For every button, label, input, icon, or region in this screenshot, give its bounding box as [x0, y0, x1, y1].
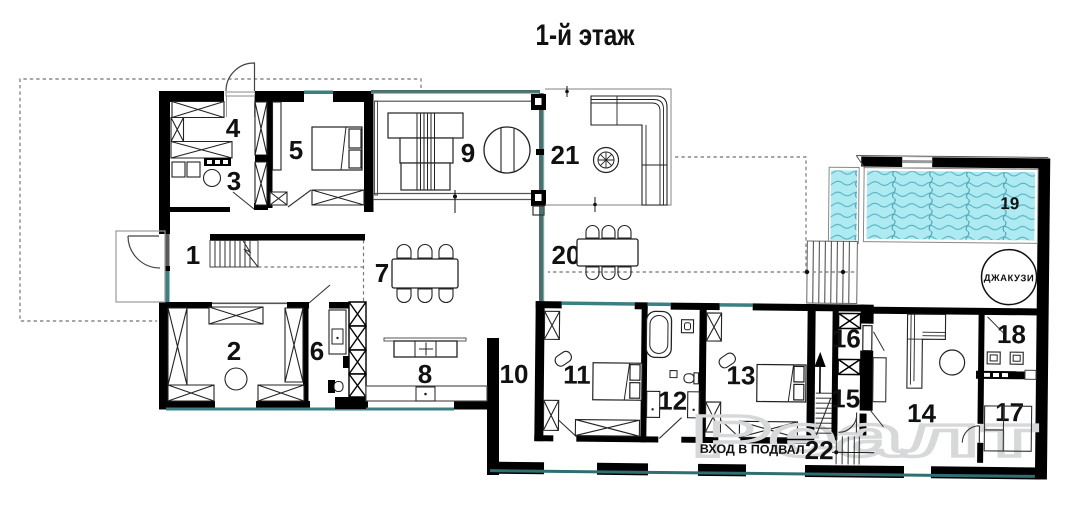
svg-text:5: 5: [289, 135, 303, 165]
svg-text:22: 22: [805, 435, 834, 465]
svg-text:ДЖАКУЗИ: ДЖАКУЗИ: [984, 273, 1035, 285]
svg-text:20: 20: [552, 240, 581, 270]
svg-text:1: 1: [186, 240, 200, 270]
svg-text:11: 11: [563, 359, 591, 389]
svg-text:8: 8: [418, 359, 432, 389]
svg-text:9: 9: [461, 138, 475, 168]
svg-text:10: 10: [500, 359, 529, 389]
svg-text:3: 3: [227, 166, 241, 196]
svg-text:21: 21: [551, 140, 580, 170]
svg-text:18: 18: [997, 319, 1026, 349]
svg-text:7: 7: [375, 258, 389, 288]
svg-text:15: 15: [831, 383, 860, 413]
svg-text:Реалт: Реалт: [691, 404, 1039, 469]
svg-text:19: 19: [1000, 194, 1019, 213]
svg-text:17: 17: [995, 397, 1024, 427]
svg-text:14: 14: [907, 398, 937, 428]
svg-text:2: 2: [227, 336, 241, 366]
svg-text:4: 4: [226, 113, 241, 143]
svg-text:1-й этаж: 1-й этаж: [536, 19, 636, 52]
svg-text:ВХОД В ПОДВАЛ: ВХОД В ПОДВАЛ: [700, 442, 805, 457]
svg-text:12: 12: [658, 385, 687, 415]
svg-text:6: 6: [310, 336, 324, 366]
